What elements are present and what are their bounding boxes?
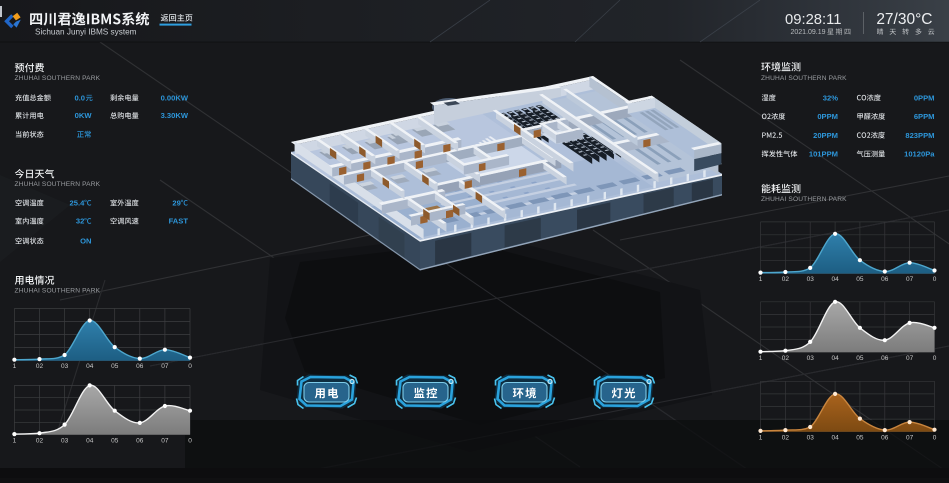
svg-text:02: 02 bbox=[782, 355, 790, 362]
svg-text:0: 0 bbox=[188, 437, 192, 444]
svg-text:0KW: 0KW bbox=[75, 111, 93, 120]
svg-text:03: 03 bbox=[807, 434, 815, 441]
svg-text:02: 02 bbox=[782, 276, 790, 283]
svg-text:0: 0 bbox=[933, 355, 937, 362]
svg-text:0: 0 bbox=[188, 363, 192, 370]
svg-text:03: 03 bbox=[61, 437, 69, 444]
svg-text:05: 05 bbox=[856, 276, 864, 283]
svg-text:0: 0 bbox=[933, 434, 937, 441]
svg-text:07: 07 bbox=[161, 437, 169, 444]
svg-text:ZHUHAI SOUTHERN PARK: ZHUHAI SOUTHERN PARK bbox=[15, 287, 101, 294]
svg-text:05: 05 bbox=[856, 434, 864, 441]
svg-text:04: 04 bbox=[86, 437, 94, 444]
svg-text:07: 07 bbox=[161, 363, 169, 370]
svg-text:04: 04 bbox=[831, 434, 839, 441]
svg-text:0: 0 bbox=[933, 276, 937, 283]
svg-text:0PPM: 0PPM bbox=[914, 93, 935, 102]
svg-text:3.30KW: 3.30KW bbox=[161, 111, 189, 120]
svg-text:07: 07 bbox=[906, 276, 914, 283]
svg-text:06: 06 bbox=[136, 363, 144, 370]
svg-text:05: 05 bbox=[856, 355, 864, 362]
svg-text:04: 04 bbox=[86, 363, 94, 370]
svg-text:ZHUHAI SOUTHERN PARK: ZHUHAI SOUTHERN PARK bbox=[761, 196, 847, 203]
svg-text:101PPM: 101PPM bbox=[809, 150, 838, 159]
svg-text:03: 03 bbox=[807, 355, 815, 362]
svg-text:2021.09.19: 2021.09.19 bbox=[791, 29, 826, 36]
svg-text:1: 1 bbox=[759, 355, 763, 362]
svg-text:04: 04 bbox=[831, 355, 839, 362]
svg-text:1: 1 bbox=[13, 363, 17, 370]
svg-text:02: 02 bbox=[36, 437, 44, 444]
svg-text:05: 05 bbox=[111, 437, 119, 444]
svg-text:04: 04 bbox=[831, 276, 839, 283]
svg-text:32: 32 bbox=[76, 217, 84, 226]
svg-text:32%: 32% bbox=[823, 93, 838, 102]
svg-text:03: 03 bbox=[807, 276, 815, 283]
svg-text:ON: ON bbox=[80, 237, 91, 246]
svg-text:02: 02 bbox=[782, 434, 790, 441]
svg-text:ZHUHAI SOUTHERN PARK: ZHUHAI SOUTHERN PARK bbox=[15, 181, 101, 188]
svg-text:20PPM: 20PPM bbox=[813, 131, 838, 140]
svg-text:0.0: 0.0 bbox=[74, 93, 85, 102]
svg-text:09:28:11: 09:28:11 bbox=[785, 12, 842, 28]
svg-text:02: 02 bbox=[36, 363, 44, 370]
svg-text:05: 05 bbox=[111, 363, 119, 370]
svg-text:Sichuan Junyi IBMS system: Sichuan Junyi IBMS system bbox=[35, 28, 137, 37]
svg-text:6PPM: 6PPM bbox=[914, 112, 935, 121]
svg-text:ZHUHAI SOUTHERN PARK: ZHUHAI SOUTHERN PARK bbox=[15, 75, 101, 82]
svg-text:FAST: FAST bbox=[169, 217, 189, 226]
svg-text:07: 07 bbox=[906, 355, 914, 362]
svg-text:06: 06 bbox=[881, 355, 889, 362]
svg-text:25.4: 25.4 bbox=[70, 199, 86, 208]
svg-text:27/30°C: 27/30°C bbox=[876, 11, 932, 28]
svg-text:0PPM: 0PPM bbox=[817, 112, 838, 121]
svg-text:ZHUHAI SOUTHERN PARK: ZHUHAI SOUTHERN PARK bbox=[761, 75, 847, 82]
svg-text:07: 07 bbox=[906, 434, 914, 441]
svg-text:29: 29 bbox=[172, 199, 180, 208]
svg-text:1: 1 bbox=[759, 276, 763, 283]
svg-text:1: 1 bbox=[759, 434, 763, 441]
svg-text:10120Pa: 10120Pa bbox=[904, 150, 935, 159]
svg-text:03: 03 bbox=[61, 363, 69, 370]
svg-text:06: 06 bbox=[881, 434, 889, 441]
svg-text:823PPM: 823PPM bbox=[905, 131, 934, 140]
svg-text:06: 06 bbox=[136, 437, 144, 444]
svg-text:0.00KW: 0.00KW bbox=[161, 93, 189, 102]
svg-text:1: 1 bbox=[13, 437, 17, 444]
svg-text:06: 06 bbox=[881, 276, 889, 283]
